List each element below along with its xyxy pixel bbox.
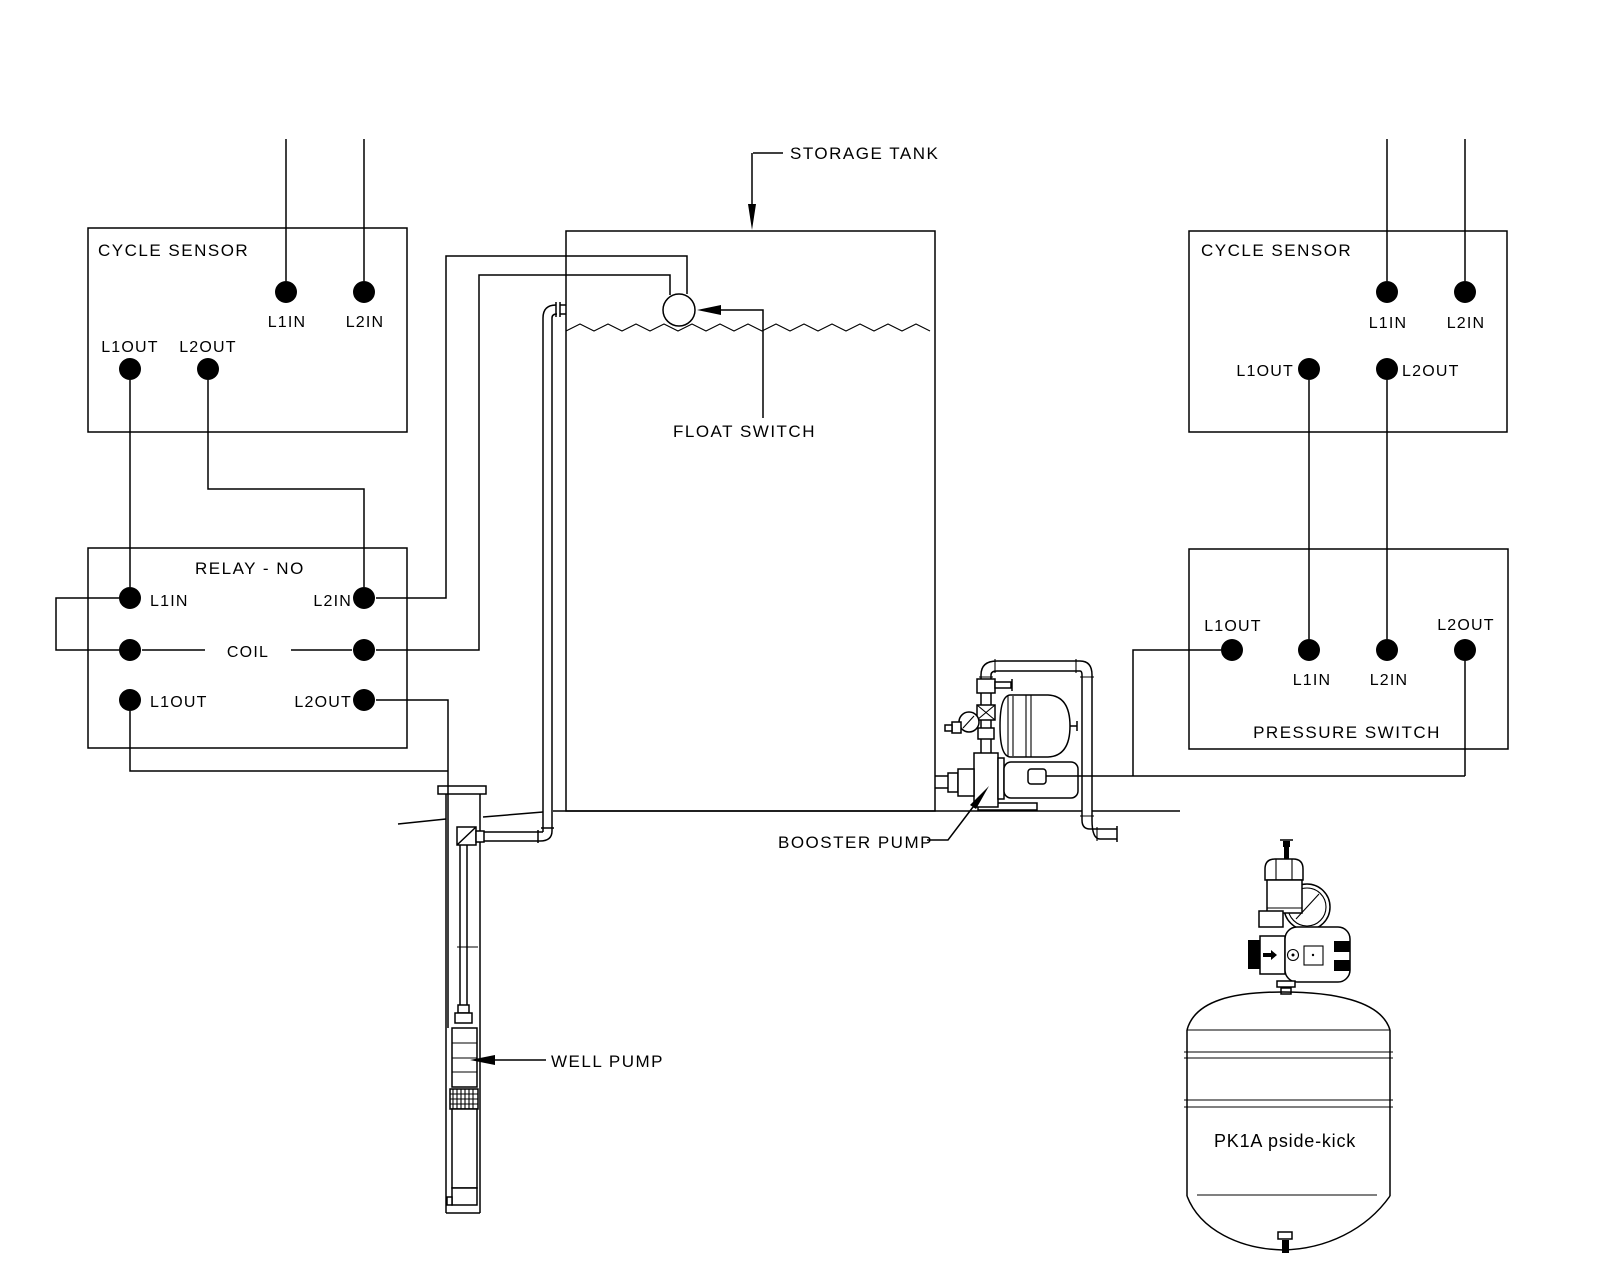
- cycle-sensor-left-title: CYCLE SENSOR: [98, 241, 249, 260]
- well-pump-label: WELL PUMP: [551, 1052, 664, 1071]
- ps-l2in-label: L2IN: [1370, 672, 1409, 689]
- wire-relay-coil-to-float: [376, 275, 670, 650]
- well-assembly: [438, 786, 486, 1213]
- ground-line: [398, 811, 1180, 824]
- csL-terminal-l1out: [119, 358, 141, 380]
- relay-terminal-l2out: [353, 689, 375, 711]
- relay-terminal-coil-right: [353, 639, 375, 661]
- csL-terminal-l2in: [353, 281, 375, 303]
- relay-terminal-l1out: [119, 689, 141, 711]
- booster-pump-label: BOOSTER PUMP: [778, 833, 933, 852]
- csR-l1in-label: L1IN: [1369, 315, 1408, 332]
- pk1a-control-box: [1285, 927, 1350, 982]
- well-pump-body: [452, 1028, 477, 1087]
- wire-relay-l1out-to-well: [130, 711, 448, 771]
- ps-l2out-label: L2OUT: [1437, 617, 1495, 634]
- csR-terminal-l2out: [1376, 358, 1398, 380]
- labels: CYCLE SENSOR L1IN L2IN L1OUT L2OUT RELAY…: [98, 144, 1495, 1151]
- pk1a-bonnet: [1265, 859, 1303, 880]
- wire-relay-l2in-to-float: [376, 256, 687, 598]
- float-switch-label: FLOAT SWITCH: [673, 422, 816, 441]
- terminals: [119, 281, 1476, 711]
- csL-l2out-label: L2OUT: [179, 339, 237, 356]
- relay-l1in-label: L1IN: [150, 593, 189, 610]
- csR-terminal-l1in: [1376, 281, 1398, 303]
- ps-l1out-label: L1OUT: [1204, 618, 1262, 635]
- ps-terminal-l2in: [1376, 639, 1398, 661]
- ps-terminal-l2out: [1454, 639, 1476, 661]
- float-switch-arrow-icon: [697, 305, 721, 315]
- relay-terminal-l2in: [353, 587, 375, 609]
- csL-l1in-label: L1IN: [268, 314, 307, 331]
- wire-csL-l2out-to-relay-l2in: [208, 380, 364, 587]
- pressure-switch-title: PRESSURE SWITCH: [1253, 723, 1441, 742]
- csL-l2in-label: L2IN: [346, 314, 385, 331]
- well-cap-flange: [438, 786, 486, 794]
- wires: [56, 139, 1465, 1028]
- relay-terminal-coil-left: [119, 639, 141, 661]
- relay-l1out-label: L1OUT: [150, 694, 208, 711]
- cycle-sensor-right-title: CYCLE SENSOR: [1201, 241, 1352, 260]
- csR-l2in-label: L2IN: [1447, 315, 1486, 332]
- csR-l2out-label: L2OUT: [1402, 363, 1460, 380]
- pk1a-tank-label: PK1A pside-kick: [1214, 1131, 1356, 1151]
- well-riser-pipe: [484, 302, 566, 843]
- wiring-diagram: CYCLE SENSOR L1IN L2IN L1OUT L2OUT RELAY…: [0, 0, 1600, 1280]
- wire-ps-l1out-to-motor: [1133, 650, 1221, 776]
- booster-pump-unit: [974, 753, 1078, 810]
- ps-terminal-l1in: [1298, 639, 1320, 661]
- relief-valve: [952, 722, 961, 733]
- relay-terminal-l1in: [119, 587, 141, 609]
- booster-pressure-tank: [1000, 695, 1077, 757]
- water-line: [566, 324, 930, 331]
- booster-pump-leader: [927, 807, 973, 840]
- pk1a-tank-outline: [1184, 992, 1393, 1253]
- storage-tank-arrow-icon: [748, 204, 756, 230]
- storage-tank-label: STORAGE TANK: [790, 144, 939, 163]
- storage-tank-outline: [566, 231, 935, 811]
- csR-l1out-label: L1OUT: [1236, 363, 1294, 380]
- csL-l1out-label: L1OUT: [101, 339, 159, 356]
- well-pump-screen: [450, 1089, 478, 1109]
- relay-title: RELAY - NO: [195, 559, 305, 578]
- csR-terminal-l1out: [1298, 358, 1320, 380]
- csL-terminal-l2out: [197, 358, 219, 380]
- wire-relay-l2out-to-well: [376, 700, 448, 1028]
- booster-inlet: [935, 769, 974, 796]
- booster-assembly: [935, 659, 1117, 842]
- float-switch-ball: [663, 294, 695, 326]
- relay-l2out-label: L2OUT: [294, 694, 352, 711]
- ball-valve: [977, 679, 995, 693]
- csL-terminal-l1in: [275, 281, 297, 303]
- ps-l1in-label: L1IN: [1293, 672, 1332, 689]
- storage-tank-leader: [752, 153, 783, 205]
- csR-terminal-l2in: [1454, 281, 1476, 303]
- well-pump-motor: [452, 1109, 477, 1188]
- motor-terminal-box: [1028, 769, 1046, 784]
- relay-l2in-label: L2IN: [313, 593, 352, 610]
- ps-terminal-l1out: [1221, 639, 1243, 661]
- relay-coil-label: COIL: [227, 644, 269, 661]
- pk1a-assembly: [1184, 840, 1393, 1253]
